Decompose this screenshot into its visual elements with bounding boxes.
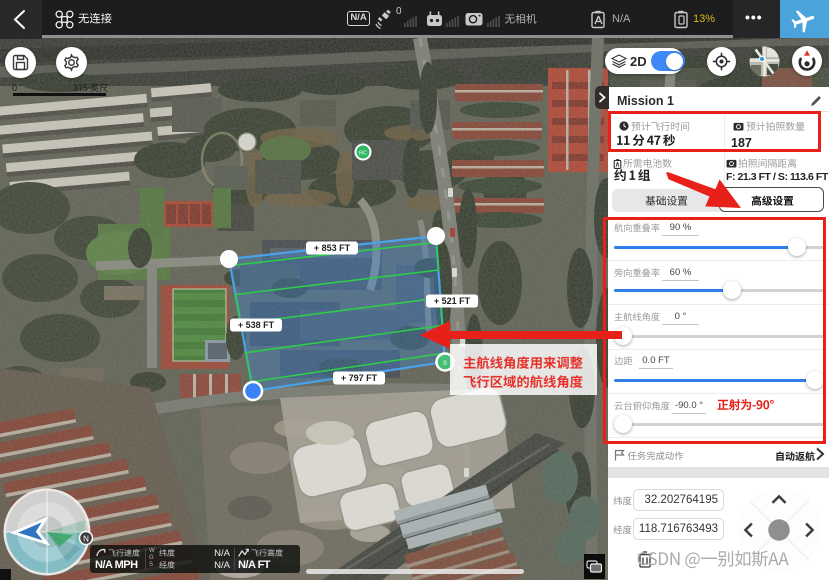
svg-text:S: S (443, 361, 447, 367)
svg-text:+ 521 FT: + 521 FT (434, 296, 471, 306)
svg-text:+ 538 FT: + 538 FT (238, 320, 275, 330)
svg-text:N: N (83, 535, 89, 544)
svg-text:RC: RC (359, 151, 367, 157)
svg-text:+ 797 FT: + 797 FT (341, 373, 378, 383)
svg-text:+ 853 FT: + 853 FT (314, 243, 351, 253)
